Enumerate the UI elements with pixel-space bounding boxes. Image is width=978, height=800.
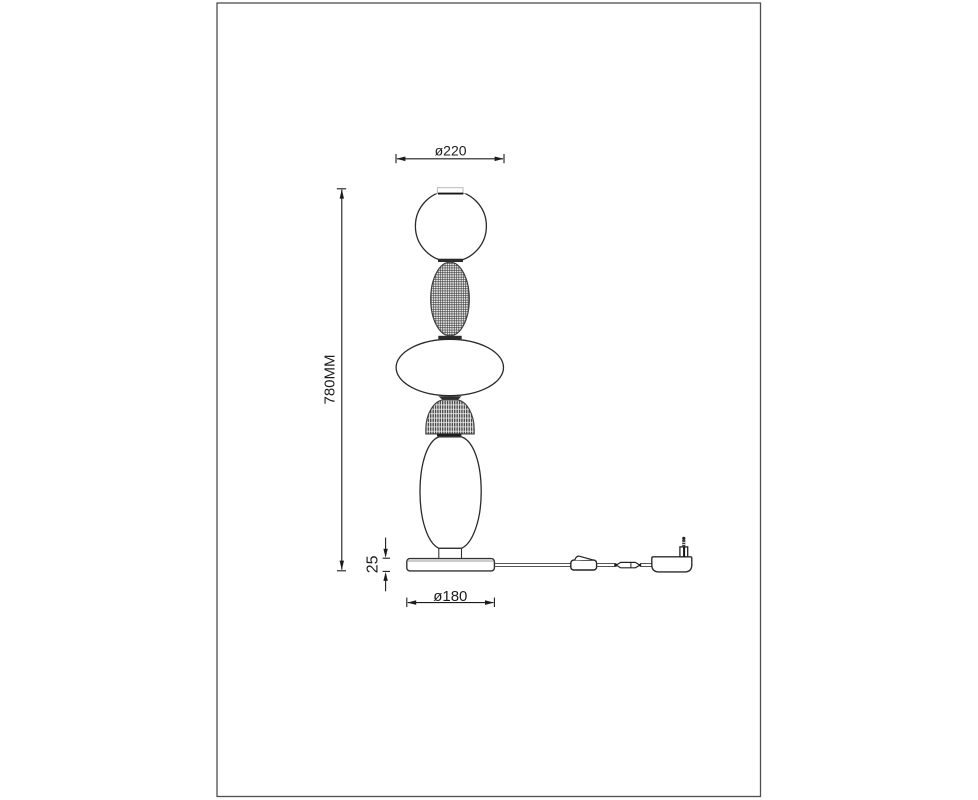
svg-text:ø180: ø180 xyxy=(433,588,467,605)
svg-text:25: 25 xyxy=(365,555,382,573)
svg-text:780MM: 780MM xyxy=(322,354,339,404)
svg-text:ø220: ø220 xyxy=(435,143,467,159)
